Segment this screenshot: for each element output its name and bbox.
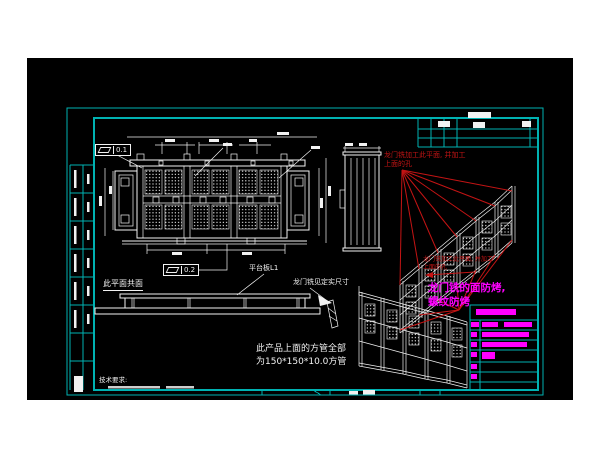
- cad-drawing-canvas[interactable]: 0.1 0.2 此平面共面 平台板L1 龙门铣见定实尺寸 此产品上面的方管全部 …: [27, 58, 573, 400]
- tolerance-value: 0.2: [181, 266, 198, 274]
- gantry-mill-dimension-label: 龙门铣见定实尺寸: [293, 278, 349, 286]
- magenta-note-line2: 螺纹防烤: [428, 295, 506, 309]
- flatness-tolerance-frame-1: 0.1: [95, 144, 131, 156]
- product-note: 此产品上面的方管全部 为150*150*10.0方管: [256, 343, 346, 369]
- magenta-protection-note: 龙门铣的面防烤, 螺纹防烤: [428, 281, 506, 309]
- flatness-symbol-icon: [98, 147, 112, 153]
- coplanar-label: 此平面共面: [103, 279, 143, 291]
- red-machining-note-bottom: 龙门铣加工此平面, 并加工 上面的孔: [423, 256, 493, 272]
- product-note-line2: 为150*150*10.0方管: [256, 356, 346, 369]
- red-note-line2: 上面的孔: [384, 160, 465, 169]
- red-note-line1: 龙门铣加工此平面, 并加工: [384, 151, 465, 160]
- tolerance-value: 0.1: [113, 146, 130, 154]
- parts-table: [470, 305, 538, 390]
- platform-plate-label: 平台板L1: [249, 264, 278, 272]
- screenshot-page: 0.1 0.2 此平面共面 平台板L1 龙门铣见定实尺寸 此产品上面的方管全部 …: [0, 0, 600, 450]
- narrow-side-view: [340, 143, 381, 251]
- red-note-line2: 上面的孔: [423, 264, 493, 272]
- red-machining-note-top: 龙门铣加工此平面, 并加工 上面的孔: [384, 151, 465, 169]
- tech-requirements-title: 技术要求:: [99, 377, 127, 385]
- flatness-tolerance-frame-2: 0.2: [163, 264, 199, 276]
- front-view: [115, 154, 309, 244]
- flatness-symbol-icon: [166, 267, 180, 273]
- red-note-line1: 龙门铣加工此平面, 并加工: [423, 256, 493, 264]
- left-revision-strip: [70, 165, 94, 392]
- product-note-line1: 此产品上面的方管全部: [256, 343, 346, 356]
- magenta-note-line1: 龙门铣的面防烤,: [428, 281, 506, 295]
